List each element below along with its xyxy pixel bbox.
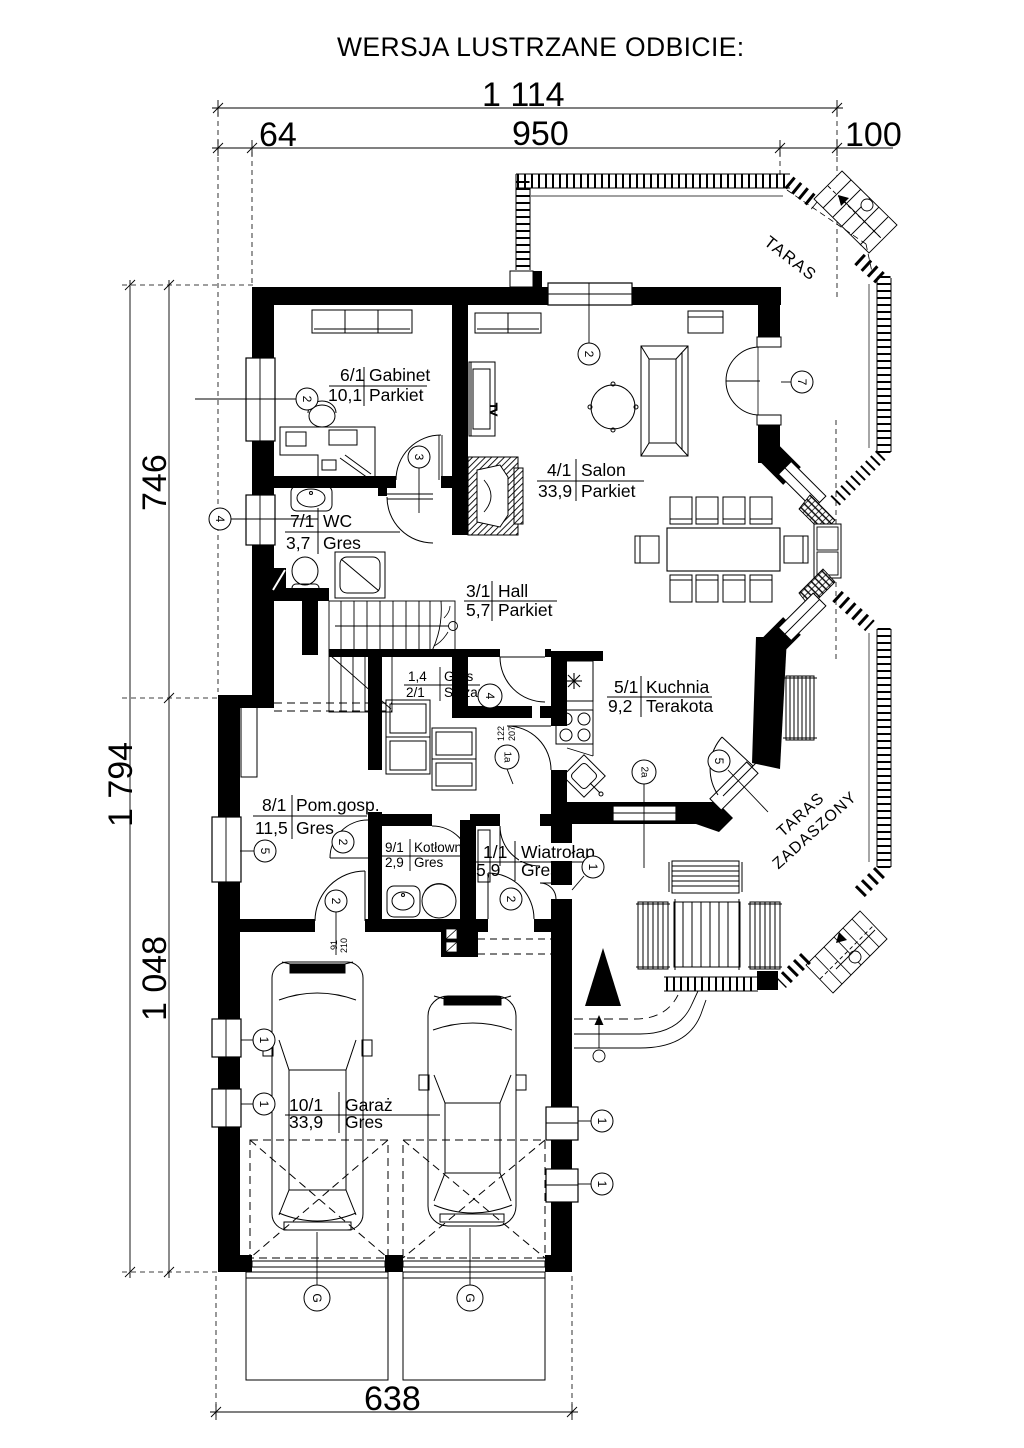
svg-text:1 794: 1 794 <box>102 742 140 827</box>
svg-text:Pom.gosp.: Pom.gosp. <box>296 795 380 815</box>
svg-text:5/1: 5/1 <box>614 677 638 697</box>
svg-text:G: G <box>310 1293 324 1302</box>
svg-text:33,9: 33,9 <box>538 481 572 501</box>
svg-text:TV: TV <box>487 403 498 416</box>
svg-text:Gres: Gres <box>444 669 474 684</box>
svg-text:Parkiet: Parkiet <box>581 481 636 501</box>
svg-text:2: 2 <box>336 839 350 846</box>
svg-text:100: 100 <box>845 116 902 154</box>
svg-text:2: 2 <box>329 898 343 905</box>
svg-text:2: 2 <box>582 351 596 358</box>
svg-text:Gres: Gres <box>323 533 361 553</box>
svg-text:Wiatrołap: Wiatrołap <box>521 842 595 862</box>
svg-text:64: 64 <box>259 116 297 154</box>
svg-text:1a: 1a <box>502 751 513 763</box>
svg-text:1 048: 1 048 <box>136 936 174 1021</box>
svg-text:746: 746 <box>136 454 174 511</box>
svg-text:950: 950 <box>512 115 569 153</box>
svg-text:91: 91 <box>329 940 339 950</box>
svg-text:4: 4 <box>213 516 227 523</box>
svg-text:1: 1 <box>257 1037 271 1044</box>
svg-text:Kuchnia: Kuchnia <box>646 677 710 697</box>
svg-text:Gres: Gres <box>296 818 334 838</box>
svg-text:1: 1 <box>595 1118 609 1125</box>
svg-text:1: 1 <box>257 1101 271 1108</box>
svg-text:Gres: Gres <box>414 855 444 870</box>
svg-text:Hall: Hall <box>498 581 528 601</box>
svg-text:1/1: 1/1 <box>483 842 507 862</box>
svg-text:4: 4 <box>483 693 497 700</box>
svg-text:4/1: 4/1 <box>547 460 571 480</box>
svg-text:207: 207 <box>507 726 517 741</box>
svg-text:122: 122 <box>496 726 506 741</box>
svg-text:638: 638 <box>364 1380 421 1418</box>
svg-text:1,4: 1,4 <box>408 669 427 684</box>
svg-text:1: 1 <box>595 1181 609 1188</box>
svg-text:2a: 2a <box>639 766 650 778</box>
svg-text:3/1: 3/1 <box>466 581 490 601</box>
svg-text:8/1: 8/1 <box>262 795 286 815</box>
svg-text:1: 1 <box>586 864 600 871</box>
svg-text:7/1: 7/1 <box>290 511 314 531</box>
svg-text:WERSJA LUSTRZANE ODBICIE:: WERSJA LUSTRZANE ODBICIE: <box>337 32 745 62</box>
svg-text:5,7: 5,7 <box>466 600 490 620</box>
svg-text:7: 7 <box>795 379 809 386</box>
svg-text:9,2: 9,2 <box>608 696 632 716</box>
svg-text:WC: WC <box>323 511 352 531</box>
svg-text:2: 2 <box>504 896 518 903</box>
svg-text:G: G <box>463 1293 477 1302</box>
svg-text:11,5: 11,5 <box>255 818 288 838</box>
svg-text:1 114: 1 114 <box>482 76 565 114</box>
svg-text:2: 2 <box>300 396 314 403</box>
svg-text:Kotłownia: Kotłownia <box>414 840 473 855</box>
svg-text:10,1: 10,1 <box>328 385 362 405</box>
svg-text:3,7: 3,7 <box>286 533 310 553</box>
svg-text:9/1: 9/1 <box>385 840 404 855</box>
svg-text:Gres: Gres <box>521 860 559 880</box>
svg-text:5: 5 <box>258 848 272 855</box>
svg-text:Terakota: Terakota <box>646 696 713 716</box>
svg-text:3: 3 <box>412 454 426 461</box>
svg-text:6/1: 6/1 <box>340 365 364 385</box>
svg-text:5: 5 <box>712 758 726 765</box>
svg-text:Parkiet: Parkiet <box>498 600 553 620</box>
svg-text:Parkiet: Parkiet <box>369 385 424 405</box>
svg-text:210: 210 <box>339 938 349 953</box>
svg-text:Salon: Salon <box>581 460 626 480</box>
svg-text:2/1: 2/1 <box>406 685 425 700</box>
svg-text:2,9: 2,9 <box>385 855 404 870</box>
svg-text:5,9: 5,9 <box>476 860 500 880</box>
svg-text:Gabinet: Gabinet <box>369 365 430 385</box>
